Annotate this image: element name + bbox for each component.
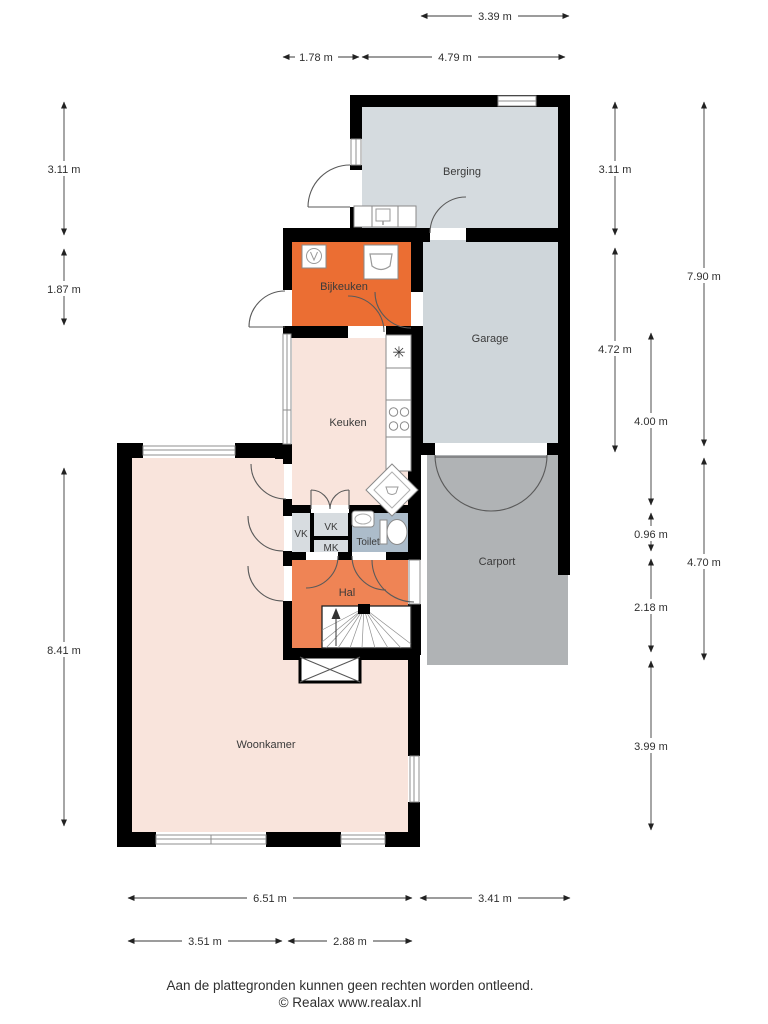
- berging-sink-unit: [354, 206, 416, 227]
- wall: [350, 95, 362, 139]
- dim-label-bottom-4: 2.88 m: [333, 936, 367, 948]
- dim-label-right-3: 4.00 m: [634, 416, 668, 428]
- label-vk-center: VK: [324, 522, 338, 533]
- label-toilet: Toilet: [356, 537, 380, 548]
- window-hal-right-door-frame: [409, 560, 420, 604]
- dim-label-top-3: 4.79 m: [438, 52, 472, 64]
- room-woonkamer-ext: [284, 660, 408, 832]
- dim-label-right-4: 0.96 m: [634, 529, 668, 541]
- dim-label-bottom-1: 6.51 m: [253, 893, 287, 905]
- stairs-newel: [358, 604, 370, 614]
- footer: Aan de plattegronden kunnen geen rechten…: [0, 977, 700, 1011]
- floorplan-page: ✳: [0, 0, 768, 1024]
- wall: [283, 228, 292, 290]
- wall: [283, 458, 292, 464]
- label-vk-left: VK: [294, 529, 308, 540]
- wall: [266, 832, 341, 847]
- label-hal: Hal: [339, 587, 356, 599]
- room-woonkamer-main: [132, 458, 284, 832]
- sink-drain-icon: ✳: [392, 345, 405, 362]
- label-carport: Carport: [479, 556, 516, 568]
- dim-label-right-7: 7.90 m: [687, 271, 721, 283]
- window-berging-left: [351, 139, 361, 165]
- wall: [547, 443, 570, 455]
- wall: [466, 228, 570, 242]
- laundry-sink-icon: [364, 245, 398, 279]
- wall: [314, 536, 348, 540]
- washbasin-icon: [352, 511, 374, 527]
- wall: [235, 443, 291, 458]
- label-keuken: Keuken: [329, 417, 366, 429]
- copyright-text: © Realax www.realax.nl: [0, 994, 700, 1011]
- wall: [283, 228, 430, 242]
- wall: [350, 95, 570, 107]
- label-bijkeuken: Bijkeuken: [320, 281, 368, 293]
- wall: [284, 505, 311, 513]
- dim-label-right-8: 4.70 m: [687, 557, 721, 569]
- label-berging: Berging: [443, 166, 481, 178]
- disclaimer-text: Aan de plattegronden kunnen geen rechten…: [0, 977, 700, 994]
- entrance-step: [300, 657, 360, 682]
- dim-label-right-2: 4.72 m: [598, 344, 632, 356]
- wall: [411, 240, 423, 292]
- dim-label-bottom-2: 3.41 m: [478, 893, 512, 905]
- wall: [348, 513, 352, 552]
- dim-label-bottom-3: 3.51 m: [188, 936, 222, 948]
- wall: [411, 443, 435, 455]
- window-woonkamer-right: [410, 756, 419, 802]
- window-woonkamer-bottom-right: [341, 835, 385, 844]
- dim-label-right-5: 2.18 m: [634, 602, 668, 614]
- wall: [283, 326, 348, 338]
- wall: [338, 552, 352, 560]
- dim-label-left-2: 1.87 m: [47, 284, 81, 296]
- window-woonkamer-bottom-left: [156, 835, 266, 844]
- wall: [117, 443, 132, 847]
- wall: [310, 513, 314, 552]
- dim-label-top-2: 1.78 m: [299, 52, 333, 64]
- toilet-icon: [380, 520, 407, 545]
- wall: [350, 165, 362, 170]
- label-garage: Garage: [472, 333, 509, 345]
- label-woonkamer: Woonkamer: [236, 739, 295, 751]
- door-arc-berging-exterior: [308, 165, 350, 207]
- wall: [117, 832, 156, 847]
- dim-label-right-1: 3.11 m: [599, 164, 632, 176]
- stairs: [322, 604, 411, 648]
- dim-label-top-1: 3.39 m: [478, 11, 512, 23]
- wall: [408, 655, 420, 756]
- floorplan-drawing: ✳: [0, 0, 768, 960]
- door-arc-bijkeuken-exterior: [249, 291, 285, 327]
- dim-label-left-1: 3.11 m: [48, 164, 81, 176]
- wall: [411, 326, 423, 455]
- window-woonkamer-top: [143, 446, 235, 455]
- dim-label-right-6: 3.99 m: [634, 741, 668, 753]
- window-berging-top: [498, 96, 536, 106]
- wall: [283, 552, 306, 560]
- window-keuken-left: [283, 334, 291, 444]
- dim-label-left-3: 8.41 m: [47, 645, 81, 657]
- label-mk: MK: [324, 543, 339, 554]
- washing-machine-icon: [302, 245, 326, 268]
- kitchen-counter: ✳: [386, 335, 411, 471]
- wall: [558, 95, 570, 575]
- wall: [408, 802, 420, 847]
